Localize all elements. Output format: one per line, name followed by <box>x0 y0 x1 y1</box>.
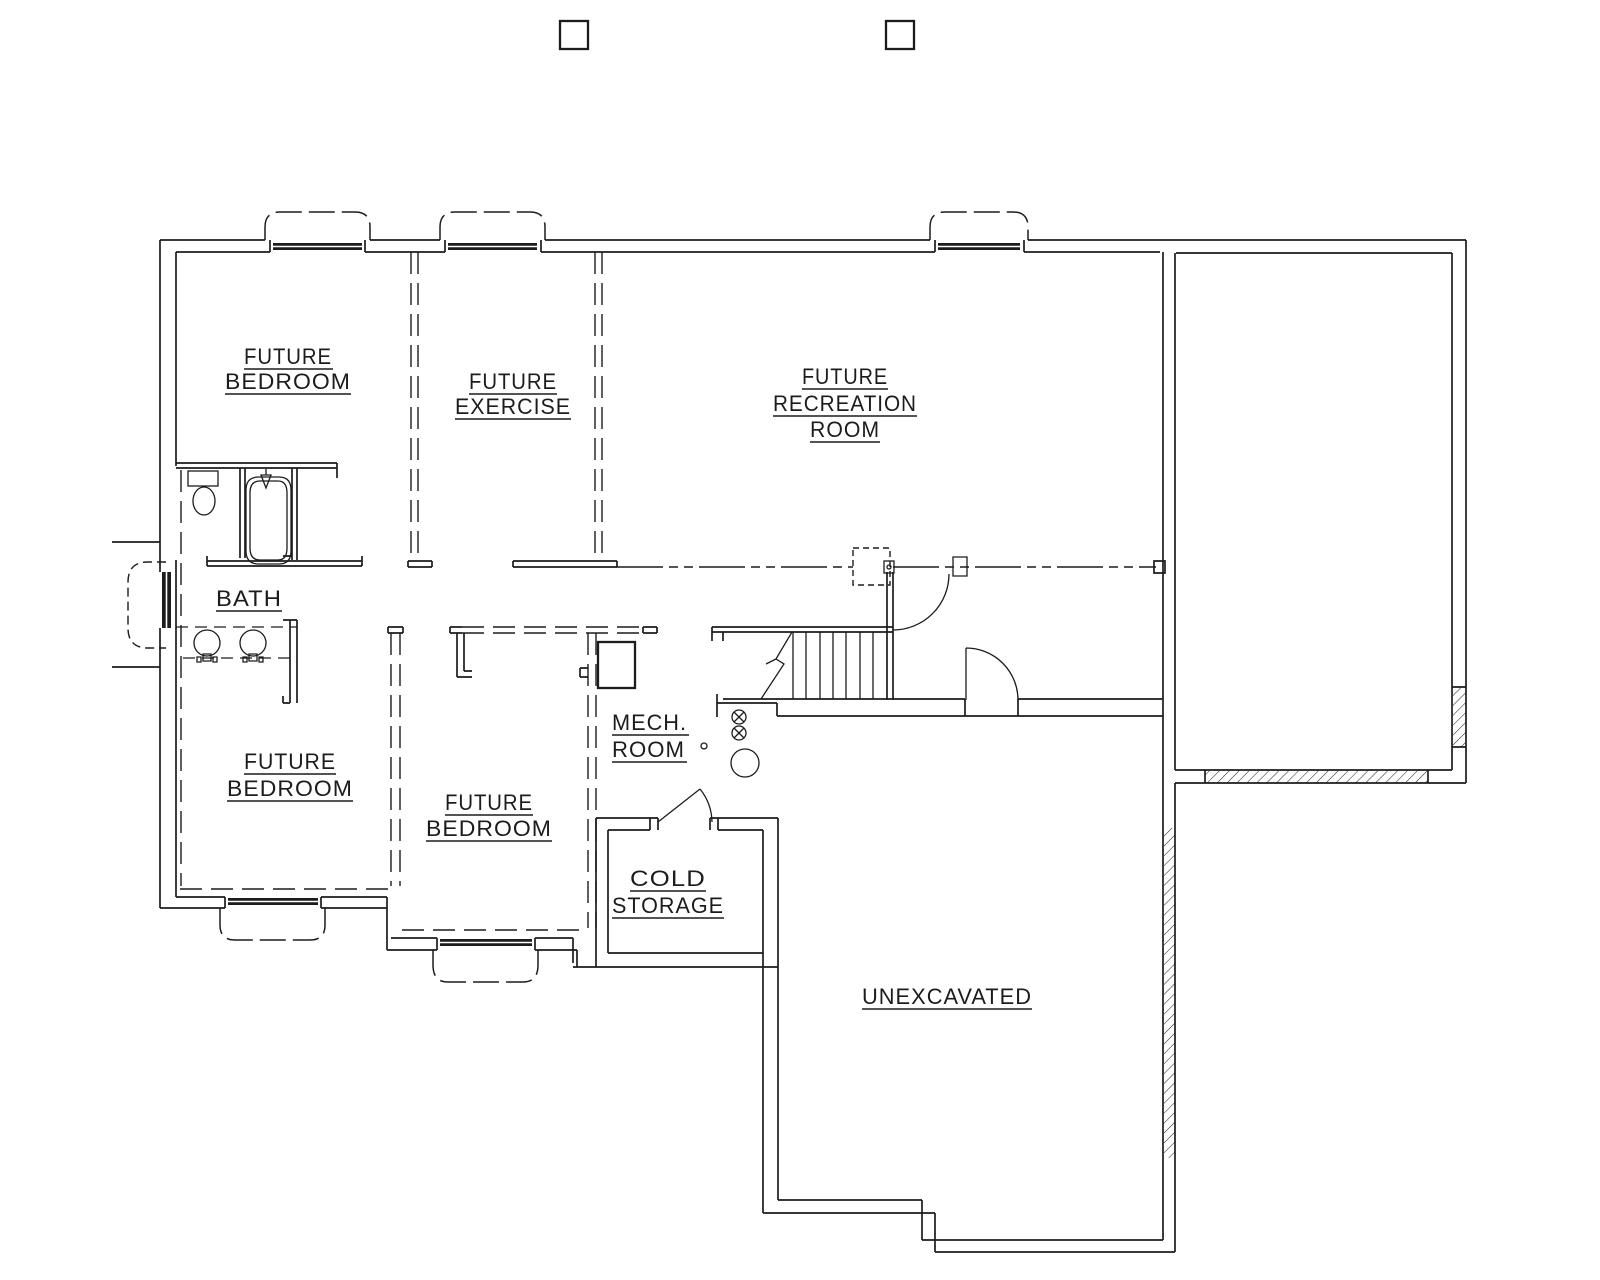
label-unexcavated: UNEXCAVATED <box>862 984 1032 1009</box>
label-future-recreation-3: ROOM <box>810 417 880 442</box>
label-future-bedroom-mid-2: BEDROOM <box>426 816 552 841</box>
label-mech-room-2: ROOM <box>612 737 685 762</box>
window-well-top-1 <box>265 212 370 240</box>
label-mech-room-1: MECH. <box>612 710 687 735</box>
floor-plan-page: FUTURE BEDROOM FUTURE EXERCISE FUTURE RE… <box>0 0 1600 1280</box>
stair-post-dot <box>887 565 891 569</box>
label-future-bedroom-upper-1: FUTURE <box>244 344 332 369</box>
door-cold-storage <box>658 789 712 822</box>
stairs <box>761 632 873 699</box>
label-future-bedroom-upper-2: BEDROOM <box>225 369 351 394</box>
foundation-hatching <box>1164 687 1466 1158</box>
window-well-bottom-1 <box>220 908 325 940</box>
cleanout-icon <box>701 743 707 749</box>
water-heater-icon <box>731 749 759 777</box>
toilet-tank-icon <box>188 471 218 486</box>
post-marker-right <box>886 21 914 49</box>
window-well-top-2 <box>440 212 545 240</box>
post-marker-left <box>560 21 588 49</box>
stair-break-line <box>761 632 792 699</box>
label-cold-storage-1: COLD <box>630 866 706 891</box>
hatch-unexcavated-wall <box>1164 828 1175 1158</box>
label-cold-storage-2: STORAGE <box>612 893 724 918</box>
sink-icon-2 <box>240 630 266 656</box>
sink-icon-1 <box>194 630 220 656</box>
interior-wall-lines <box>176 463 1165 717</box>
label-future-bedroom-left-1: FUTURE <box>244 749 336 774</box>
hatch-bottom-wall <box>1205 771 1428 783</box>
label-future-exercise-1: FUTURE <box>469 369 557 394</box>
stair-post <box>884 561 894 573</box>
window-well-top-3 <box>930 212 1028 240</box>
floor-drain-x-1 <box>734 712 744 722</box>
shower-head-icon <box>261 469 271 488</box>
stair-treads <box>793 632 873 699</box>
doors <box>658 548 1018 822</box>
door-swing-hall <box>966 648 1018 700</box>
room-labels: FUTURE BEDROOM FUTURE EXERCISE FUTURE RE… <box>216 344 1032 1009</box>
post-markers <box>560 21 914 49</box>
label-future-bedroom-mid-1: FUTURE <box>445 790 533 815</box>
label-future-recreation-1: FUTURE <box>802 364 888 389</box>
label-future-exercise-2: EXERCISE <box>455 394 571 419</box>
interior-walls <box>176 463 1165 717</box>
door-swing-stair-top <box>893 574 949 630</box>
hatch-right-wall <box>1453 687 1466 747</box>
window-well-bottom-2 <box>433 950 538 982</box>
toilet-bowl-icon <box>193 487 215 515</box>
tub-icon <box>246 477 291 564</box>
floor-plan-drawing: FUTURE BEDROOM FUTURE EXERCISE FUTURE RE… <box>0 0 1600 1280</box>
furnace-icon <box>598 642 635 688</box>
label-future-bedroom-left-2: BEDROOM <box>227 776 353 801</box>
label-bath: BATH <box>216 586 282 611</box>
floor-drain-x-2 <box>734 728 744 738</box>
label-future-recreation-2: RECREATION <box>773 391 917 416</box>
